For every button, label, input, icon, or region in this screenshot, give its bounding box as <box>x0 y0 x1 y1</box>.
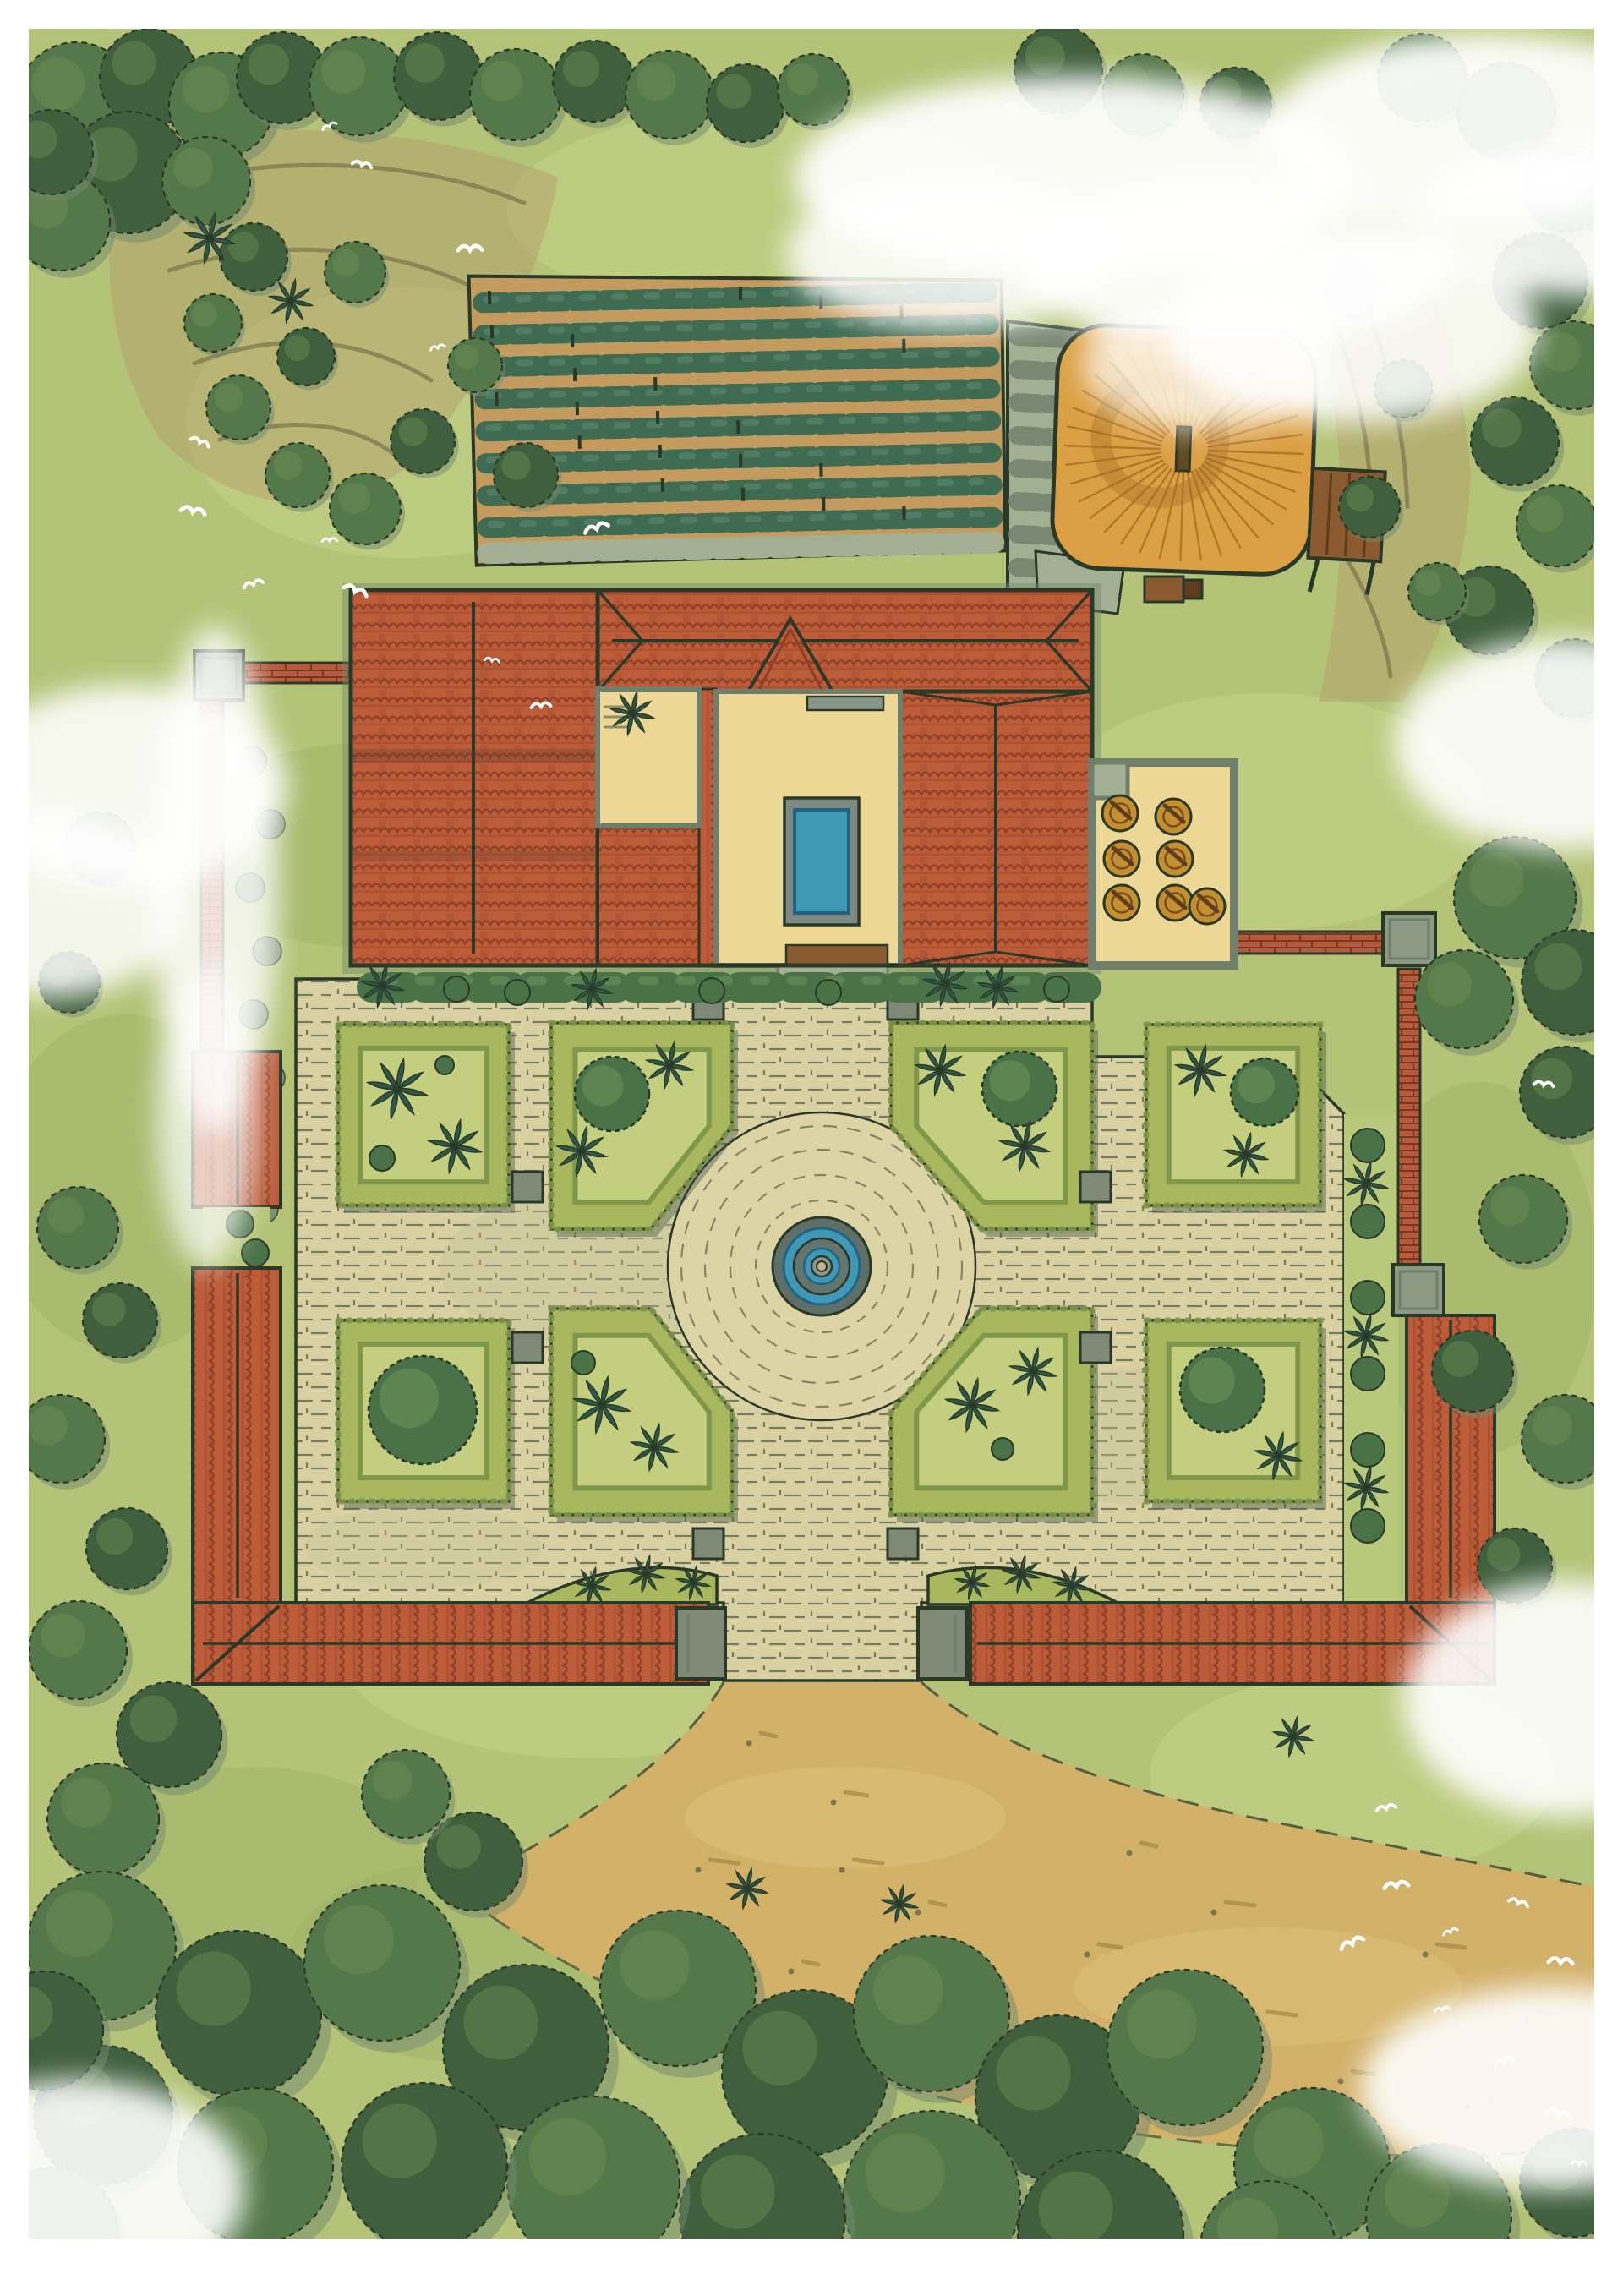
bush-icon <box>242 1239 269 1266</box>
bush-icon <box>699 978 724 1003</box>
stone-post <box>512 1332 543 1363</box>
clay-jar <box>1102 795 1138 831</box>
garden-bed <box>338 1025 515 1213</box>
stone-post <box>1080 1172 1111 1202</box>
clay-jar <box>1157 885 1193 921</box>
fountain <box>773 1217 871 1315</box>
bush-icon <box>1351 1357 1385 1391</box>
stone-post <box>1080 1332 1111 1363</box>
cloud <box>1082 296 1336 431</box>
bush-icon <box>505 980 530 1005</box>
wall-tower <box>1383 913 1435 965</box>
hacienda <box>342 583 1234 1009</box>
yard-corner-stone <box>1092 763 1128 798</box>
clay-jar <box>1157 841 1193 877</box>
wooden-crate <box>1145 577 1202 602</box>
bush-icon <box>1351 1509 1385 1543</box>
bush-icon <box>1044 976 1069 1002</box>
clay-jar <box>1104 885 1139 921</box>
garden-bed <box>1146 1025 1326 1213</box>
garden-bed <box>1146 1320 1326 1509</box>
gate-post-right <box>918 1608 967 1679</box>
stone-post <box>693 1528 724 1559</box>
cloud <box>156 964 258 1268</box>
stone-post <box>888 1528 918 1559</box>
east-thin-wall <box>1398 969 1420 1265</box>
fountain-pedestal <box>817 1261 827 1271</box>
map-page <box>0 0 1623 2296</box>
pavement-tint <box>304 1505 541 1589</box>
clay-jar <box>1156 799 1191 834</box>
clay-jar <box>1189 888 1225 924</box>
bush-icon <box>992 1438 1014 1460</box>
bush-icon <box>1351 1281 1385 1315</box>
stone-bench <box>807 697 883 710</box>
garden-bed <box>338 1320 515 1509</box>
east-lawn-strip <box>1344 1114 1398 1603</box>
wall-tower <box>1393 1265 1444 1315</box>
plunge-pool <box>795 810 849 913</box>
bush-icon <box>435 1056 454 1074</box>
bush-icon <box>571 1351 595 1375</box>
bush-icon <box>1351 1205 1385 1238</box>
stone-post <box>512 1172 543 1202</box>
smoke-hole <box>1176 427 1191 472</box>
bush-icon <box>369 1145 395 1171</box>
gate-post-left <box>676 1608 725 1679</box>
bush-icon <box>816 980 841 1005</box>
north-west-thin-wall <box>243 663 351 683</box>
bush-icon <box>1351 1129 1385 1162</box>
clay-jar <box>1104 841 1139 877</box>
estate-map <box>0 0 1623 2296</box>
jar-yard <box>1092 763 1234 965</box>
bush-icon <box>444 976 469 1002</box>
stone-border-row <box>488 543 993 554</box>
yard-to-tower-wall <box>1234 932 1383 954</box>
bush-icon <box>1351 1433 1385 1467</box>
cloud <box>786 178 1124 330</box>
